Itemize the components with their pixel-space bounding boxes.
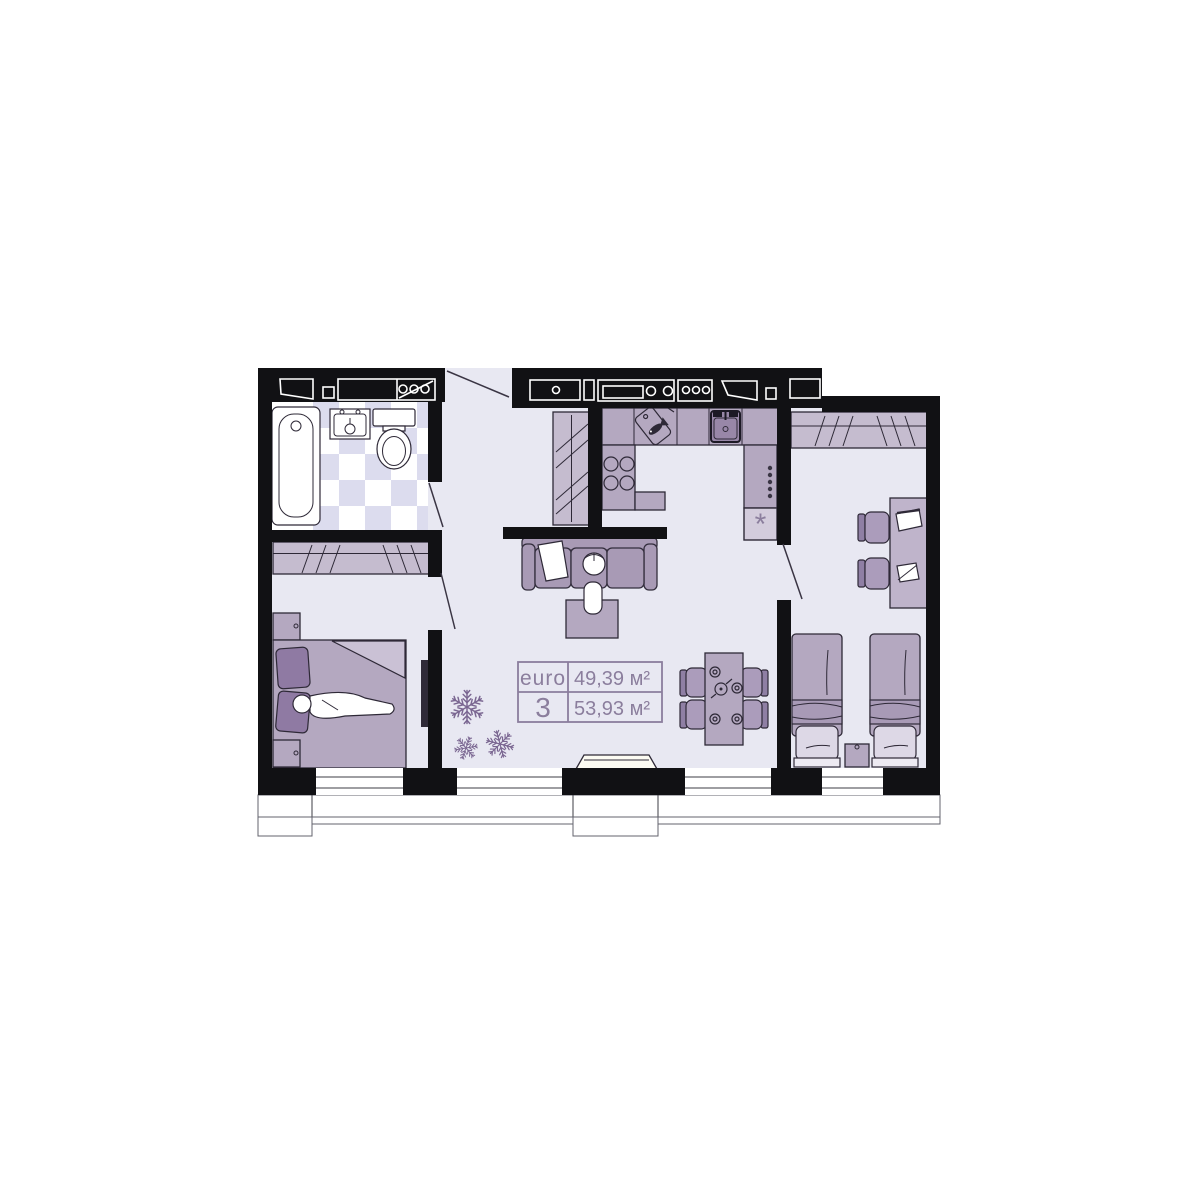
kitchen-counter-right [744, 445, 777, 508]
desk-chair [858, 512, 889, 543]
floor-plan: * [0, 0, 1200, 1200]
window [316, 768, 403, 795]
dining-chair [741, 668, 768, 697]
window [685, 768, 771, 795]
dining-chair [680, 700, 707, 729]
window [457, 768, 562, 795]
pillow [874, 726, 916, 760]
window [822, 768, 883, 795]
hallway-wardrobe [553, 412, 590, 525]
fridge: * [744, 508, 777, 541]
nightstand [845, 744, 869, 767]
kitchen-counter-step [635, 492, 665, 510]
single-bed [792, 634, 842, 767]
balcony-slabs [258, 795, 940, 836]
bathtub [272, 407, 320, 525]
dining-chair [741, 700, 768, 729]
unit-type-label: euro [520, 667, 566, 690]
pillow [276, 647, 311, 689]
unit-area-top: 49,39 м² [574, 668, 650, 690]
pillow [796, 726, 838, 760]
floor-plan-canvas: * [0, 0, 1200, 1200]
nightstand [273, 740, 300, 767]
toilet [373, 409, 415, 469]
single-bed [870, 634, 920, 767]
fridge-asterisk: * [755, 508, 767, 541]
dining-table [705, 653, 743, 745]
nightstand [273, 613, 300, 640]
bathroom-sink [330, 409, 370, 439]
desk-chair [858, 558, 889, 589]
kitchen-sink [711, 411, 740, 442]
unit-label-card: euro 3 49,39 м² 53,93 м² [518, 662, 662, 723]
unit-area-bottom: 53,93 м² [574, 698, 650, 720]
kitchen-counter [602, 408, 788, 445]
wardrobe [273, 542, 435, 574]
unit-type-number: 3 [535, 692, 551, 723]
bathroom [272, 402, 428, 530]
dining-chair [680, 668, 707, 697]
wardrobe [791, 412, 927, 448]
windowsill [576, 755, 657, 769]
